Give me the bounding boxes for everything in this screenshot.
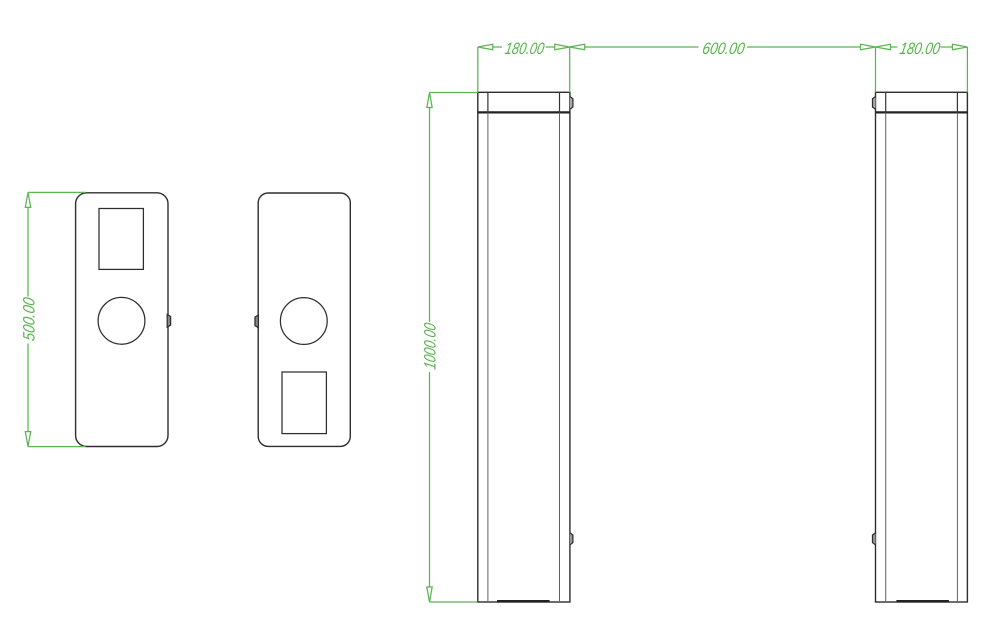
svg-text:600.00: 600.00 — [701, 39, 747, 58]
svg-text:180.00: 180.00 — [898, 39, 942, 58]
svg-text:1000.00: 1000.00 — [420, 321, 439, 371]
svg-text:500.00: 500.00 — [20, 295, 39, 342]
svg-text:180.00: 180.00 — [504, 39, 547, 58]
